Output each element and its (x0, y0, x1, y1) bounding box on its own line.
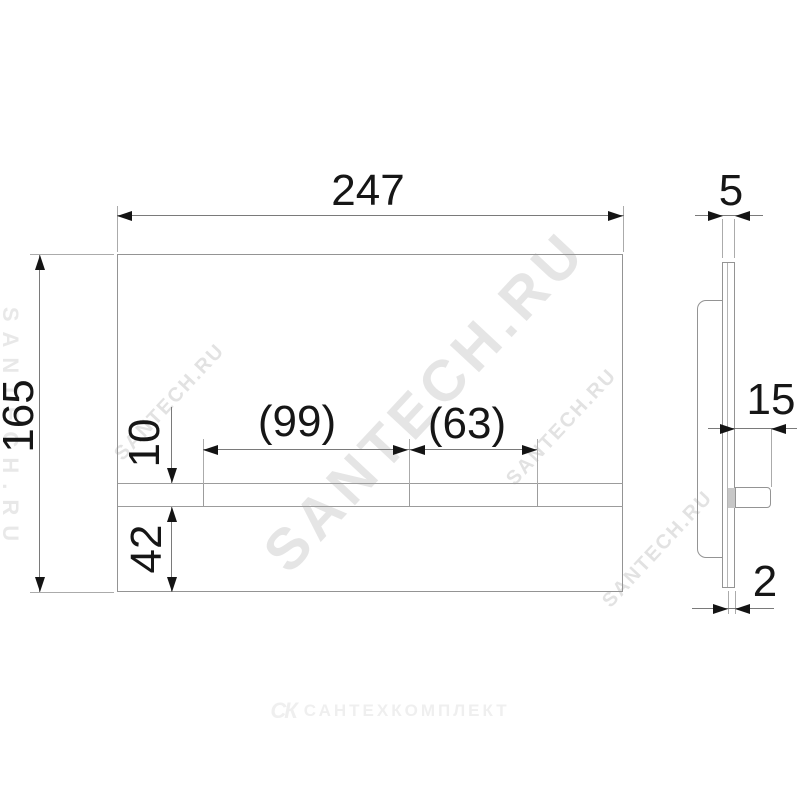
button-small-extension-right (537, 439, 538, 484)
width-arrowhead-right (608, 211, 623, 221)
button-small-label: (63) (407, 402, 527, 446)
bottom-offset-label: 42 (125, 489, 169, 609)
button-depth-arrowhead-left (720, 424, 735, 434)
santehkomplekt-logo: СКСАНТЕХКОМПЛЕКТ (250, 698, 530, 724)
side-button-outline (735, 487, 771, 508)
button-depth-arrowhead-right (771, 424, 786, 434)
strip-bottom-line (118, 506, 623, 507)
thickness-extension-right (734, 219, 735, 258)
side-button-shade (728, 488, 735, 508)
thickness-extension-left (722, 219, 723, 258)
strip-divider-middle (409, 484, 410, 506)
width-extension-right (623, 206, 624, 252)
panel-thickness-arrowhead-left (713, 604, 728, 614)
technical-drawing-flush-plate: SANTECH.RU SANTECH.RU SANTECH.RU SANTECH… (0, 0, 800, 800)
height-arrowhead-top (35, 255, 45, 270)
button-large-dimension-line (203, 449, 409, 450)
thickness-dimension-line (695, 215, 763, 216)
button-depth-label: 15 (731, 378, 800, 422)
strip-divider-left (203, 484, 204, 506)
panel-thickness-extension-left (728, 591, 729, 614)
height-arrowhead-bottom (35, 577, 45, 592)
width-arrowhead-left (117, 211, 132, 221)
height-extension-bottom (30, 592, 114, 593)
strip-height-arrowhead (167, 468, 177, 483)
logo-monogram-icon: СК (270, 698, 295, 723)
logo-text: САНТЕХКОМПЛЕКТ (304, 701, 510, 720)
button-small-arrowhead-right (522, 445, 537, 455)
button-large-label: (99) (237, 400, 357, 444)
front-plate-outline (117, 254, 623, 592)
button-large-arrowhead-left (203, 445, 218, 455)
button-small-dimension-line (409, 449, 537, 450)
panel-thickness-label: 2 (740, 560, 790, 604)
panel-thickness-dimension-line (692, 608, 774, 609)
panel-thickness-arrowhead-right (735, 604, 750, 614)
button-large-arrowhead-right (393, 445, 408, 455)
strip-divider-right (537, 484, 538, 506)
width-dimension-line (117, 215, 624, 216)
thickness-label: 5 (701, 169, 761, 213)
height-dimension-label: 165 (0, 356, 41, 476)
button-depth-extension (771, 428, 772, 487)
strip-height-label: 10 (123, 383, 167, 503)
strip-top-line (118, 483, 623, 484)
button-small-arrowhead-left (410, 445, 425, 455)
width-dimension-label: 247 (308, 169, 428, 213)
